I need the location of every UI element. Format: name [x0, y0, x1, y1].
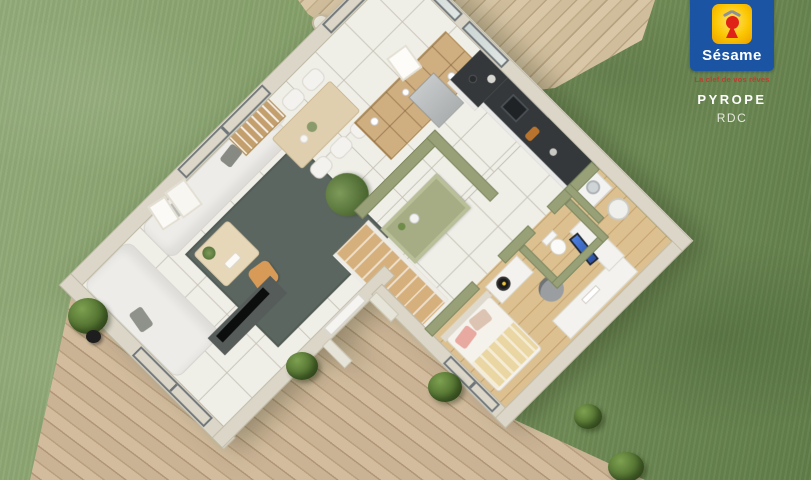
potted-plant-foliage	[68, 298, 108, 334]
garden-bush	[608, 452, 644, 480]
brand-block: MAISONS Sésame La clef de vos rêves PYRO…	[690, 0, 774, 125]
entry-bush	[286, 352, 318, 380]
program-name: PYROPE	[690, 92, 774, 107]
brand-name: Sésame	[692, 48, 772, 64]
floor-level-label: RDC	[690, 111, 774, 125]
floorplan-scene: MAISONS Sésame La clef de vos rêves PYRO…	[0, 0, 811, 480]
brand-banner-text: MAISONS	[692, 0, 772, 1]
entry-bush	[428, 372, 462, 402]
garden-bush	[574, 404, 602, 429]
plant-pot	[86, 330, 101, 343]
keyhole-icon	[712, 4, 752, 44]
roof-icon	[724, 9, 740, 16]
brand-tagline: La clef de vos rêves	[690, 75, 774, 84]
brand-logo: MAISONS Sésame	[690, 0, 774, 71]
